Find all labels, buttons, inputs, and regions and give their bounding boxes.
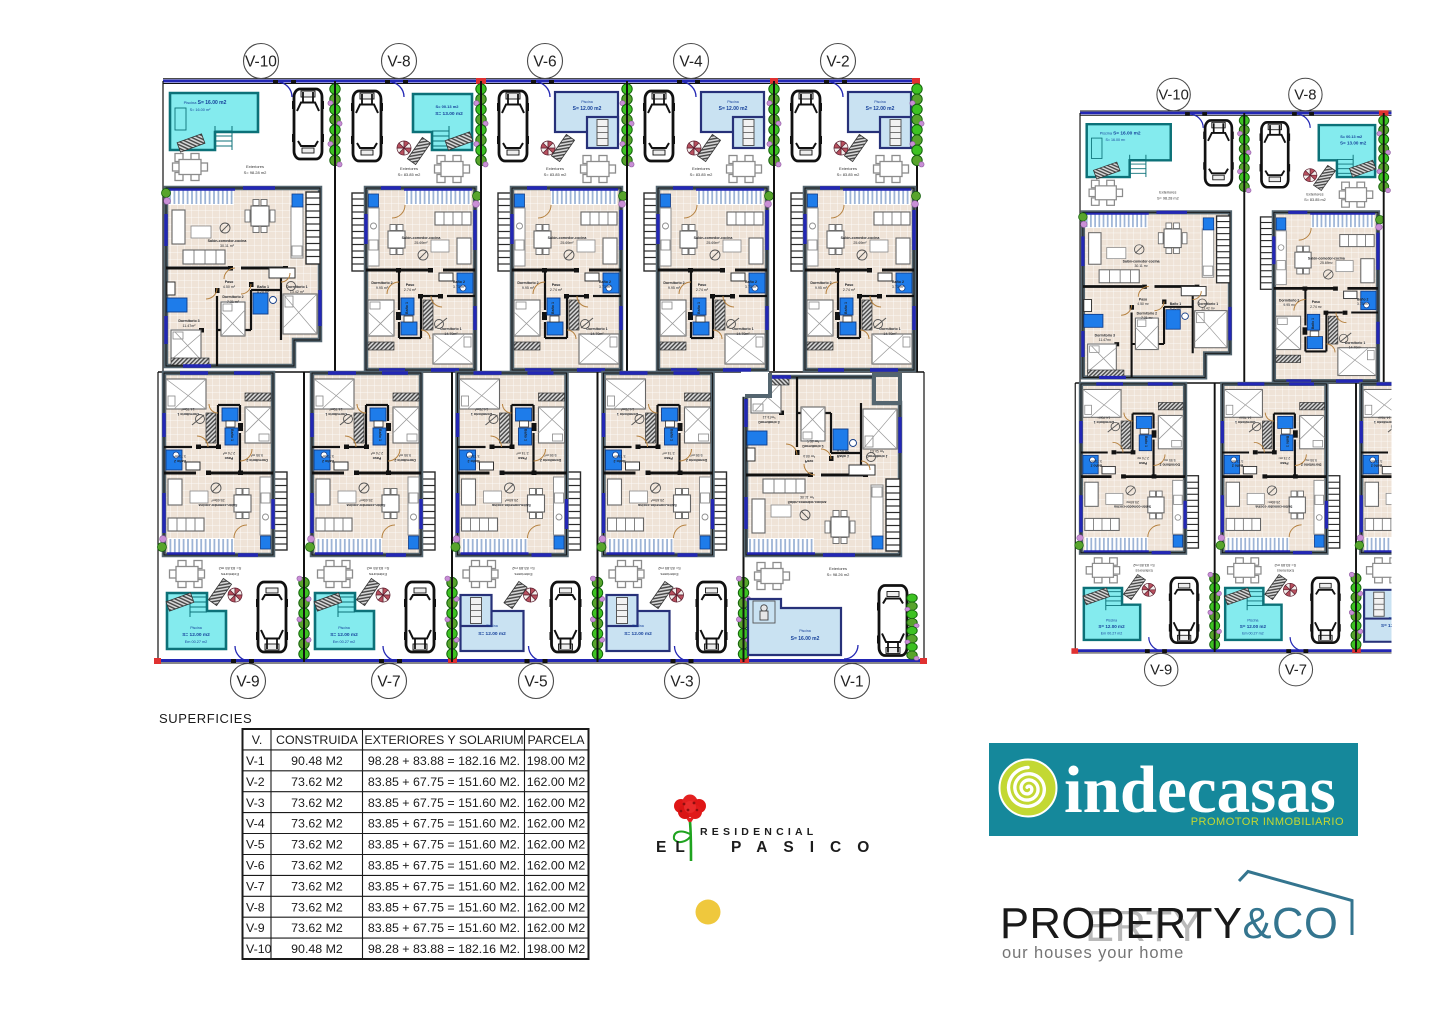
svg-text:EXTERIORES Y SOLARIUM: EXTERIORES Y SOLARIUM [364, 733, 523, 747]
svg-text:S= 12.00 m2: S= 12.00 m2 [182, 632, 210, 638]
svg-text:83.85 + 67.75 = 151.60 M2.: 83.85 + 67.75 = 151.60 M2. [368, 838, 520, 852]
svg-text:PROMOTOR INMOBILIARIO: PROMOTOR INMOBILIARIO [1191, 816, 1344, 828]
svg-text:S= 16.00 m²: S= 16.00 m² [190, 108, 212, 112]
svg-text:198.00 M2: 198.00 M2 [527, 942, 586, 956]
svg-text:PARCELA: PARCELA [528, 733, 586, 747]
svg-text:S= 98.26 m2: S= 98.26 m2 [827, 572, 851, 577]
svg-text:Em 00.27 m2: Em 00.27 m2 [185, 640, 208, 644]
svg-text:S= 12.00 m2: S= 12.00 m2 [624, 631, 652, 637]
svg-text:V-9: V-9 [236, 674, 259, 691]
svg-text:V-3: V-3 [246, 796, 265, 810]
svg-text:V-4: V-4 [246, 817, 265, 831]
svg-text:V.: V. [252, 733, 263, 747]
svg-text:S= 00.13 m2: S= 00.13 m2 [435, 104, 459, 109]
svg-text:RESIDENCIAL: RESIDENCIAL [700, 826, 817, 838]
svg-text:162.00 M2: 162.00 M2 [527, 775, 586, 789]
svg-text:V-10: V-10 [246, 942, 272, 956]
svg-text:V-5: V-5 [524, 674, 547, 691]
svg-text:V-1: V-1 [246, 754, 265, 768]
svg-text:our houses your home: our houses your home [1002, 944, 1184, 962]
svg-text:S= 16.00 m2: S= 16.00 m2 [791, 636, 820, 642]
svg-text:Piscina: Piscina [190, 626, 202, 630]
svg-text:Piscina: Piscina [727, 100, 739, 104]
svg-text:V-7: V-7 [246, 879, 265, 893]
svg-text:V-5: V-5 [246, 838, 265, 852]
svg-text:V-2: V-2 [826, 54, 849, 71]
svg-text:Piscina: Piscina [874, 100, 886, 104]
svg-text:V-6: V-6 [533, 54, 556, 71]
svg-text:V-9: V-9 [246, 921, 265, 935]
svg-text:Piscina: Piscina [581, 100, 593, 104]
svg-text:SUPERFICIES: SUPERFICIES [159, 711, 252, 726]
svg-text:EL: EL [656, 839, 694, 856]
svg-text:Em 00.27 m2: Em 00.27 m2 [333, 640, 356, 644]
svg-text:Exteriores: Exteriores [246, 164, 264, 169]
svg-text:162.00 M2: 162.00 M2 [527, 879, 586, 893]
svg-text:73.62 M2: 73.62 M2 [291, 900, 343, 914]
svg-text:V-6: V-6 [246, 859, 265, 873]
svg-text:162.00 M2: 162.00 M2 [527, 838, 586, 852]
svg-text:S= 12.00 m2: S= 12.00 m2 [330, 632, 358, 638]
svg-text:90.48 M2: 90.48 M2 [291, 942, 343, 956]
svg-text:198.00 M2: 198.00 M2 [527, 754, 586, 768]
svg-text:CONSTRUIDA: CONSTRUIDA [276, 733, 359, 747]
svg-text:Piscina: Piscina [486, 624, 498, 628]
svg-text:83.85 + 67.75 = 151.60 M2.: 83.85 + 67.75 = 151.60 M2. [368, 796, 520, 810]
svg-text:V-2: V-2 [246, 775, 265, 789]
svg-text:162.00 M2: 162.00 M2 [527, 796, 586, 810]
svg-text:V-4: V-4 [679, 54, 703, 71]
svg-text:83.85 + 67.75 = 151.60 M2.: 83.85 + 67.75 = 151.60 M2. [368, 775, 520, 789]
svg-text:83.85 + 67.75 = 151.60 M2.: 83.85 + 67.75 = 151.60 M2. [368, 921, 520, 935]
svg-text:S= 98.28 m2: S= 98.28 m2 [244, 170, 268, 175]
svg-text:83.85 + 67.75 = 151.60 M2.: 83.85 + 67.75 = 151.60 M2. [368, 900, 520, 914]
svg-text:73.62 M2: 73.62 M2 [291, 838, 343, 852]
svg-text:98.28 + 83.88 = 182.16 M2.: 98.28 + 83.88 = 182.16 M2. [368, 754, 520, 768]
svg-text:98.28 + 83.88 = 182.16 M2.: 98.28 + 83.88 = 182.16 M2. [368, 942, 520, 956]
svg-text:V-3: V-3 [670, 674, 693, 691]
svg-text:73.62 M2: 73.62 M2 [291, 817, 343, 831]
svg-text:73.62 M2: 73.62 M2 [291, 879, 343, 893]
svg-text:S= 13.00 m2: S= 13.00 m2 [435, 111, 463, 117]
svg-text:S= 12.00 m2: S= 12.00 m2 [478, 631, 506, 637]
svg-text:S= 12.00 m2: S= 12.00 m2 [719, 106, 748, 112]
svg-text:PROPERTY&CO: PROPERTY&CO [1000, 900, 1338, 948]
svg-text:PASICO: PASICO [731, 839, 885, 856]
svg-text:162.00 M2: 162.00 M2 [527, 900, 586, 914]
svg-text:S= 12.00 m2: S= 12.00 m2 [573, 106, 602, 112]
svg-text:V-10: V-10 [245, 54, 277, 71]
svg-text:Piscina: Piscina [632, 624, 644, 628]
svg-text:Exteriores: Exteriores [829, 566, 847, 571]
svg-text:Piscina: Piscina [799, 629, 811, 633]
svg-text:162.00 M2: 162.00 M2 [527, 921, 586, 935]
svg-text:83.85 + 67.75 = 151.60 M2.: 83.85 + 67.75 = 151.60 M2. [368, 859, 520, 873]
svg-text:73.62 M2: 73.62 M2 [291, 859, 343, 873]
svg-text:V-8: V-8 [387, 54, 410, 71]
svg-text:Piscina: Piscina [338, 626, 350, 630]
svg-text:162.00 M2: 162.00 M2 [527, 859, 586, 873]
svg-text:S= 12.00 m2: S= 12.00 m2 [866, 106, 895, 112]
svg-text:73.62 M2: 73.62 M2 [291, 796, 343, 810]
svg-text:V-7: V-7 [377, 674, 400, 691]
svg-text:73.62 M2: 73.62 M2 [291, 921, 343, 935]
svg-text:83.85 + 67.75 = 151.60 M2.: 83.85 + 67.75 = 151.60 M2. [368, 817, 520, 831]
svg-text:90.48 M2: 90.48 M2 [291, 754, 343, 768]
svg-text:V-1: V-1 [840, 674, 863, 691]
svg-text:73.62 M2: 73.62 M2 [291, 775, 343, 789]
svg-text:83.85 + 67.75 = 151.60 M2.: 83.85 + 67.75 = 151.60 M2. [368, 879, 520, 893]
svg-text:V-8: V-8 [246, 900, 265, 914]
svg-text:162.00 M2: 162.00 M2 [527, 817, 586, 831]
